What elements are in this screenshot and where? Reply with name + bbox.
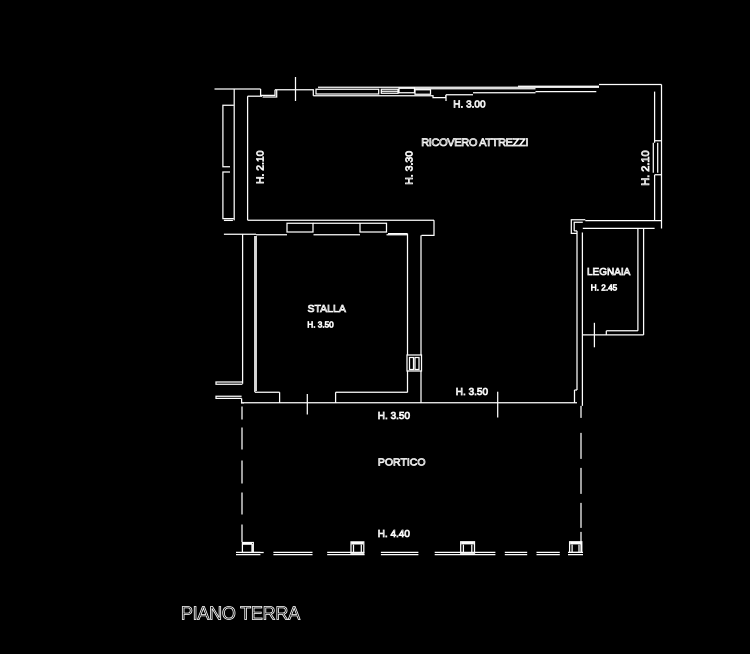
svg-text:H. 2.10: H. 2.10 <box>256 150 267 184</box>
svg-text:PORTICO: PORTICO <box>378 456 426 468</box>
svg-text:STALLA: STALLA <box>308 303 346 315</box>
svg-text:H. 3.50: H. 3.50 <box>378 411 411 422</box>
svg-text:RICOVERO ATTREZZI: RICOVERO ATTREZZI <box>421 137 528 149</box>
svg-text:H. 3.50: H. 3.50 <box>456 387 489 398</box>
svg-text:PIANO TERRA: PIANO TERRA <box>181 604 300 624</box>
svg-text:H. 4.40: H. 4.40 <box>378 529 411 540</box>
svg-text:H. 2.10: H. 2.10 <box>640 150 652 185</box>
svg-text:LEGNAIA: LEGNAIA <box>587 267 631 278</box>
svg-text:H. 3.30: H. 3.30 <box>404 151 416 185</box>
svg-text:H. 3.50: H. 3.50 <box>307 320 334 329</box>
svg-text:H. 3.00: H. 3.00 <box>453 100 486 111</box>
svg-text:H. 2.45: H. 2.45 <box>591 283 618 292</box>
